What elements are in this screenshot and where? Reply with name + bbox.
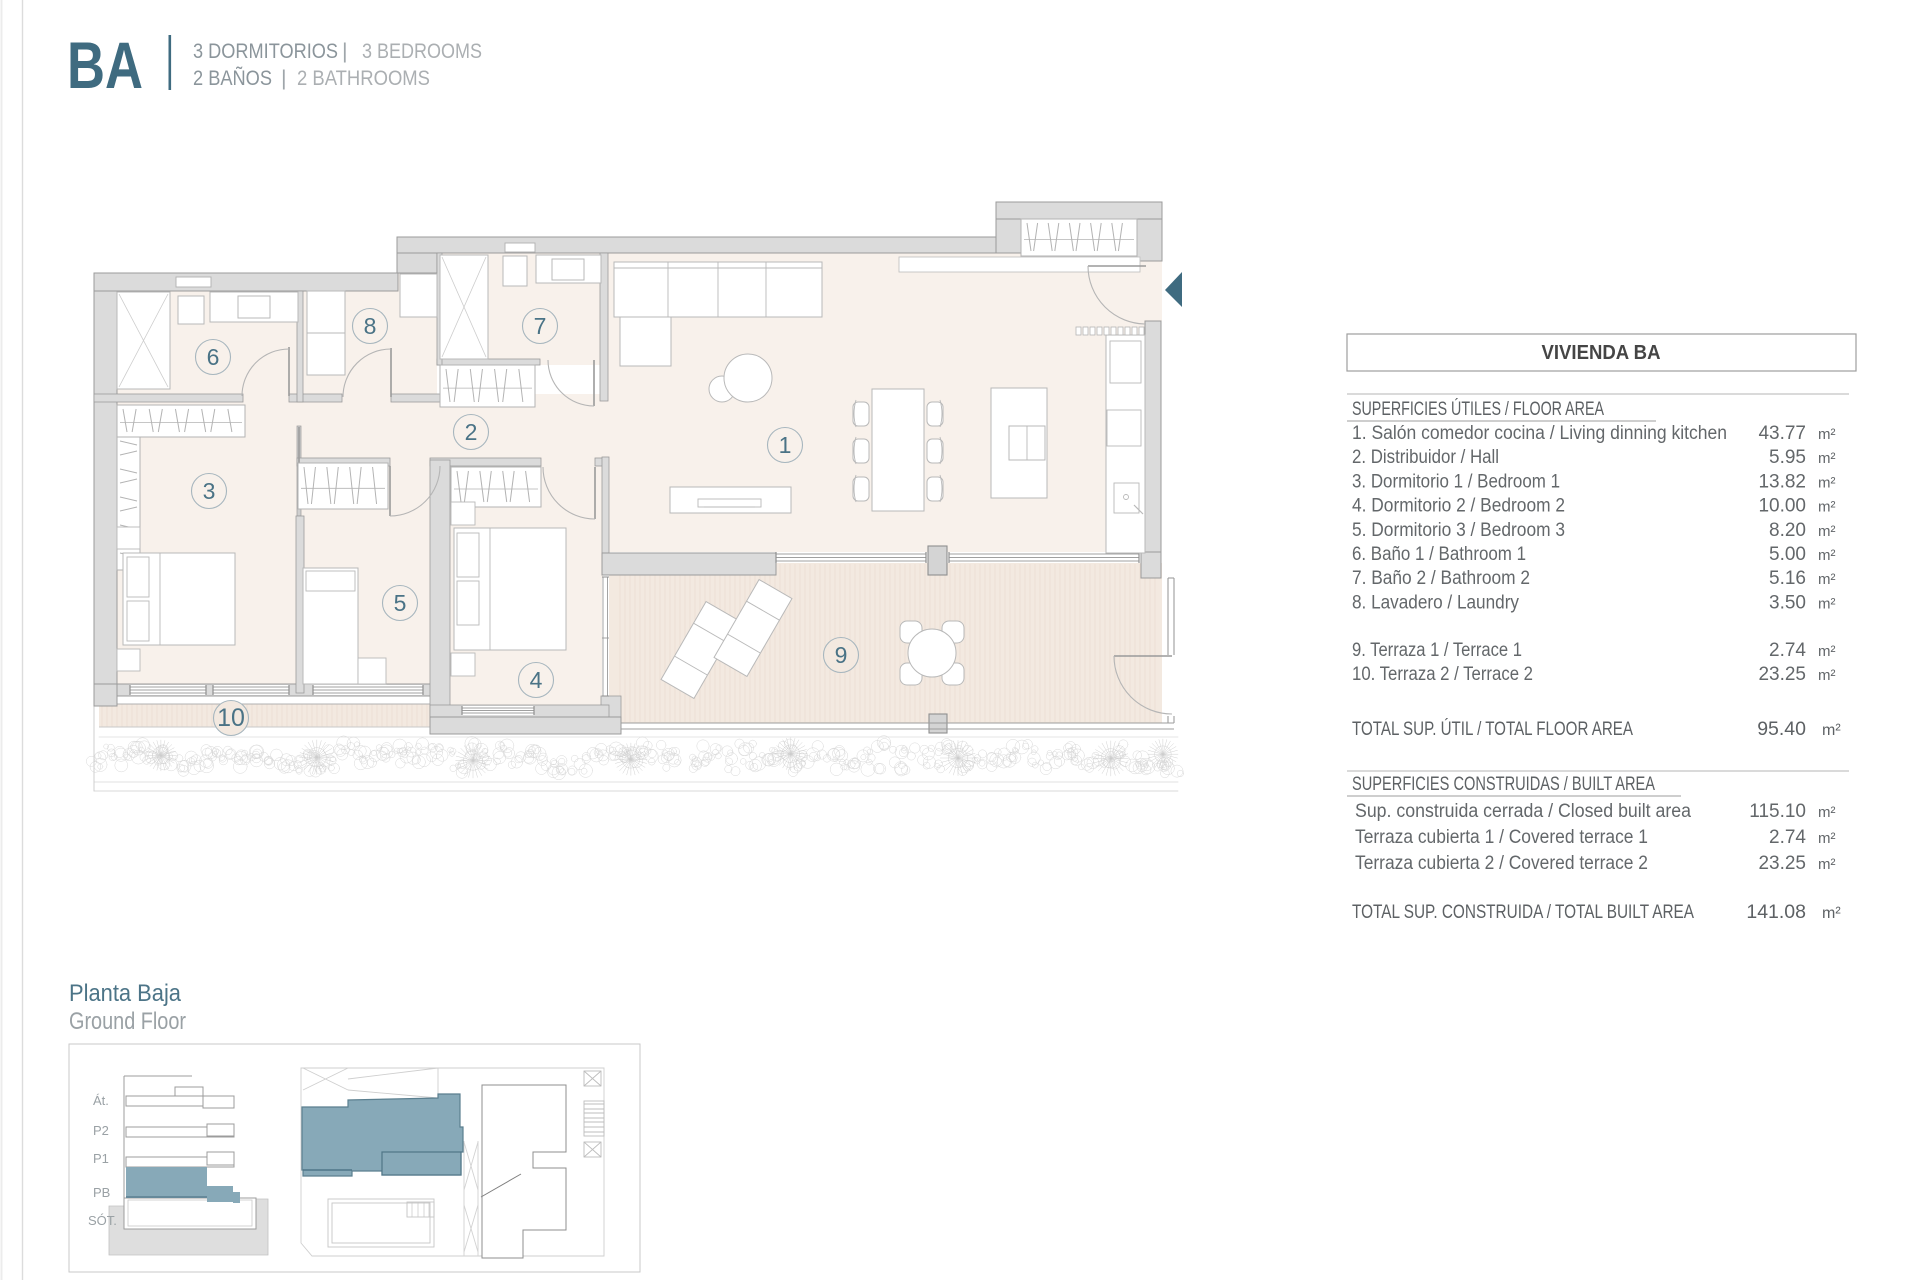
svg-text:SUPERFICIES ÚTILES / FLOOR ARE: SUPERFICIES ÚTILES / FLOOR AREA (1352, 397, 1604, 420)
svg-text:Terraza cubierta 1 / Covered t: Terraza cubierta 1 / Covered terrace 1 (1355, 827, 1648, 848)
svg-text:43.77: 43.77 (1758, 423, 1806, 444)
svg-text:VIVIENDA BA: VIVIENDA BA (1542, 342, 1661, 364)
svg-text:SÓT.: SÓT. (88, 1213, 117, 1228)
svg-text:1: 1 (779, 432, 792, 458)
svg-text:3. Dormitorio 1 / Bedroom 1: 3. Dormitorio 1 / Bedroom 1 (1352, 471, 1560, 492)
svg-text:9. Terraza 1 / Terrace 1: 9. Terraza 1 / Terrace 1 (1352, 640, 1522, 661)
svg-text:23.25: 23.25 (1758, 853, 1806, 874)
svg-text:TOTAL SUP. ÚTIL / TOTAL FLOOR: TOTAL SUP. ÚTIL / TOTAL FLOOR AREA (1352, 717, 1633, 740)
svg-text:2: 2 (465, 419, 478, 445)
svg-text:Át.: Át. (93, 1093, 109, 1108)
svg-text:m²: m² (1822, 905, 1841, 922)
svg-text:7. Baño 2 / Bathroom 2: 7. Baño 2 / Bathroom 2 (1352, 568, 1530, 589)
svg-text:BA: BA (67, 28, 143, 102)
svg-text:m²: m² (1818, 474, 1836, 491)
svg-text:Terraza cubierta 2 / Covered t: Terraza cubierta 2 / Covered terrace 2 (1355, 853, 1648, 874)
svg-text:3: 3 (203, 478, 216, 504)
svg-text:5: 5 (394, 590, 407, 616)
svg-text:5.95: 5.95 (1769, 447, 1806, 468)
svg-text:6. Baño 1 / Bathroom 1: 6. Baño 1 / Bathroom 1 (1352, 544, 1526, 565)
svg-text:2 BAÑOS: 2 BAÑOS (193, 65, 272, 90)
svg-text:5.00: 5.00 (1769, 544, 1806, 565)
svg-text:P1: P1 (93, 1151, 109, 1166)
svg-text:2.74: 2.74 (1769, 640, 1806, 661)
svg-text:m²: m² (1818, 571, 1836, 588)
svg-text:23.25: 23.25 (1758, 664, 1806, 685)
svg-text:Ground Floor: Ground Floor (69, 1008, 186, 1035)
svg-text:3 DORMITORIOS: 3 DORMITORIOS (193, 39, 338, 63)
svg-text:|: | (342, 39, 348, 63)
svg-text:m²: m² (1818, 426, 1836, 443)
svg-text:115.10: 115.10 (1749, 801, 1806, 822)
svg-text:m²: m² (1818, 856, 1836, 873)
svg-text:9: 9 (835, 642, 848, 668)
svg-text:m²: m² (1818, 595, 1836, 612)
svg-text:2 BATHROOMS: 2 BATHROOMS (297, 66, 430, 90)
svg-text:4. Dormitorio 2 / Bedroom 2: 4. Dormitorio 2 / Bedroom 2 (1352, 496, 1565, 517)
svg-text:95.40: 95.40 (1757, 718, 1806, 740)
svg-text:m²: m² (1818, 830, 1836, 847)
svg-text:m²: m² (1818, 450, 1836, 467)
svg-text:m²: m² (1818, 667, 1836, 684)
svg-text:m²: m² (1818, 523, 1836, 540)
svg-text:PB: PB (93, 1185, 110, 1200)
svg-text:13.82: 13.82 (1758, 471, 1806, 492)
svg-text:8. Lavadero / Laundry: 8. Lavadero / Laundry (1352, 592, 1519, 613)
svg-text:1. Salón comedor cocina / Livi: 1. Salón comedor cocina / Living dinning… (1352, 423, 1727, 444)
svg-text:P2: P2 (93, 1123, 109, 1138)
svg-text:8: 8 (364, 313, 377, 339)
svg-text:2.74: 2.74 (1769, 827, 1806, 848)
svg-text:TOTAL SUP. CONSTRUIDA / TOTAL: TOTAL SUP. CONSTRUIDA / TOTAL BUILT AREA (1352, 901, 1694, 923)
svg-text:3 BEDROOMS: 3 BEDROOMS (362, 39, 482, 63)
svg-text:Planta Baja: Planta Baja (69, 980, 182, 1007)
svg-text:7: 7 (534, 313, 547, 339)
svg-text:10.00: 10.00 (1758, 496, 1806, 517)
svg-text:|: | (281, 66, 287, 90)
svg-text:2. Distribuidor / Hall: 2. Distribuidor / Hall (1352, 447, 1499, 468)
svg-text:10. Terraza 2 / Terrace 2: 10. Terraza 2 / Terrace 2 (1352, 664, 1533, 685)
svg-text:8.20: 8.20 (1769, 520, 1806, 541)
svg-text:3.50: 3.50 (1769, 592, 1806, 613)
svg-text:m²: m² (1818, 499, 1836, 516)
svg-text:10: 10 (217, 704, 245, 732)
svg-text:m²: m² (1822, 722, 1841, 739)
svg-text:5. Dormitorio 3 / Bedroom 3: 5. Dormitorio 3 / Bedroom 3 (1352, 520, 1565, 541)
svg-text:Sup. construida cerrada / Clos: Sup. construida cerrada / Closed built a… (1355, 801, 1691, 822)
svg-text:4: 4 (530, 667, 543, 693)
svg-text:5.16: 5.16 (1769, 568, 1806, 589)
svg-text:SUPERFICIES CONSTRUIDAS / BUIL: SUPERFICIES CONSTRUIDAS / BUILT AREA (1352, 773, 1655, 795)
svg-text:141.08: 141.08 (1746, 901, 1806, 923)
svg-text:m²: m² (1818, 643, 1836, 660)
svg-text:m²: m² (1818, 804, 1836, 821)
svg-text:6: 6 (207, 344, 220, 370)
svg-text:m²: m² (1818, 547, 1836, 564)
